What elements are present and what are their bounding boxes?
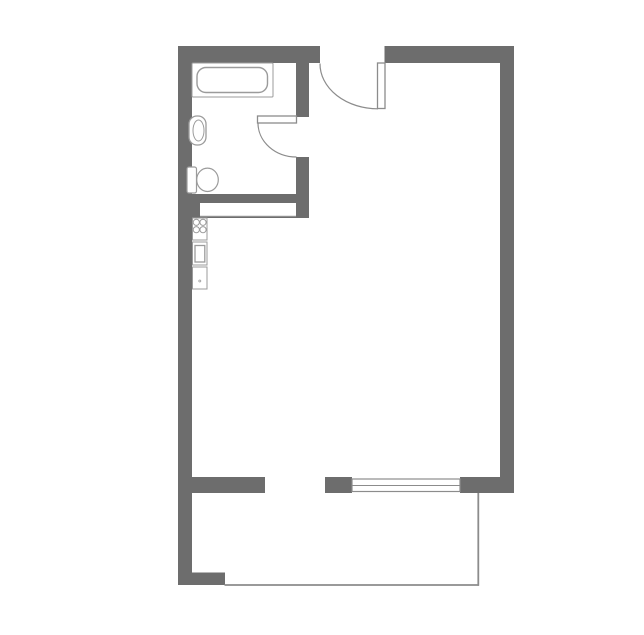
canvas-background <box>0 0 644 635</box>
right-wall <box>500 46 514 493</box>
bathroom-wall-pocket-opening <box>200 203 296 216</box>
window-pier-left <box>325 477 352 493</box>
bathroom-wall-vertical-upper <box>296 46 309 117</box>
stove-burner-3 <box>193 227 199 233</box>
floor-plan-svg <box>0 0 644 635</box>
stove-burner-4 <box>200 227 206 233</box>
entry-door-leaf <box>378 63 386 109</box>
stove-burner-1 <box>193 219 199 225</box>
kitchen-appliance-door <box>195 246 205 263</box>
toilet-tank <box>187 167 197 193</box>
window-wall-right <box>460 477 514 493</box>
stove-burner-2 <box>200 219 206 225</box>
bathtub-basin <box>197 68 268 93</box>
balcony-wall-stub <box>192 573 225 586</box>
top-wall-right <box>385 46 515 63</box>
bathroom-door-leaf <box>258 116 297 123</box>
living-wall-bottom-left <box>192 477 265 493</box>
kitchen-counter <box>193 267 208 289</box>
toilet-bowl <box>197 168 219 191</box>
floor-plan-page <box>0 0 644 635</box>
sink-bowl <box>193 120 204 141</box>
